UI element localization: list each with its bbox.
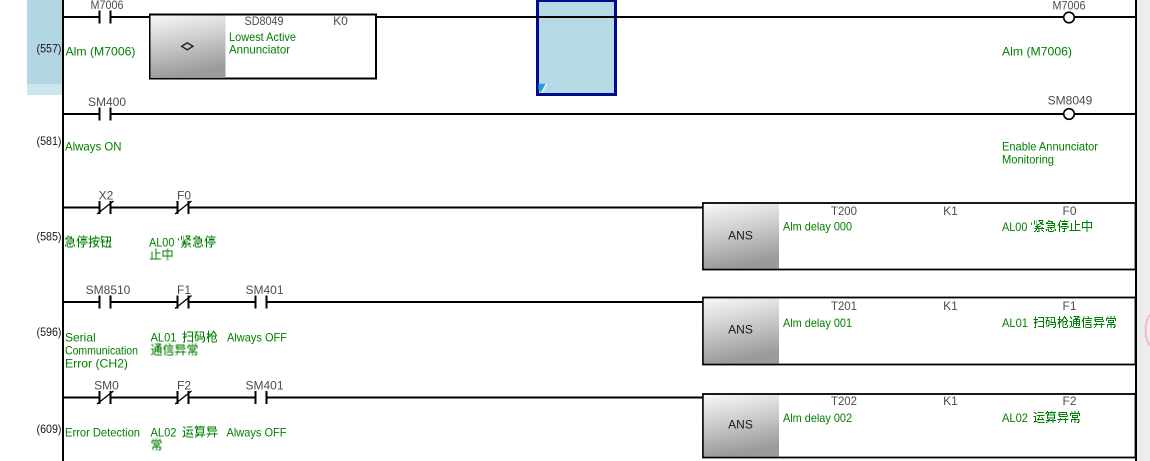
svg-text:T200: T200 (831, 204, 857, 218)
svg-text:ANS: ANS (728, 229, 753, 243)
svg-text:Error Detection: Error Detection (65, 426, 140, 440)
svg-text:AL02: AL02 (1002, 411, 1028, 425)
svg-text:SM401: SM401 (245, 283, 283, 297)
svg-text:(596): (596) (37, 325, 62, 339)
svg-text:Serial: Serial (65, 331, 96, 345)
svg-text:SM8510: SM8510 (86, 283, 131, 297)
svg-text:Always OFF: Always OFF (227, 331, 287, 345)
svg-text:Alm delay 000: Alm delay 000 (783, 220, 852, 234)
svg-text:M7006: M7006 (91, 0, 124, 12)
svg-text:F2: F2 (177, 379, 191, 393)
svg-text:Alm delay 002: Alm delay 002 (783, 411, 852, 425)
svg-text:(557): (557) (37, 42, 62, 56)
svg-text:F0: F0 (1062, 204, 1076, 218)
svg-text:Alm delay 001: Alm delay 001 (783, 316, 852, 330)
svg-text:Annunciator: Annunciator (229, 43, 290, 57)
svg-text:Alm (M7006): Alm (M7006) (66, 45, 136, 59)
svg-text:AL02: AL02 (151, 426, 177, 440)
svg-text:Monitoring: Monitoring (1002, 153, 1054, 167)
svg-text:ANS: ANS (728, 323, 753, 337)
svg-text:AL00 ': AL00 ' (1002, 220, 1033, 234)
svg-text:Always OFF: Always OFF (227, 426, 287, 440)
svg-text:SM401: SM401 (245, 379, 283, 393)
svg-text:K1: K1 (943, 394, 958, 408)
svg-text:T201: T201 (831, 299, 857, 313)
svg-text:(609): (609) (37, 422, 62, 436)
svg-text:Always ON: Always ON (65, 140, 122, 154)
svg-text:SM8049: SM8049 (1048, 94, 1093, 108)
svg-text:F0: F0 (177, 189, 191, 203)
svg-text:SM400: SM400 (88, 95, 126, 109)
svg-text:Communication: Communication (65, 344, 138, 358)
svg-text:F2: F2 (1062, 394, 1076, 408)
svg-text:ANS: ANS (728, 418, 753, 432)
svg-text:Error (CH2): Error (CH2) (65, 357, 128, 371)
svg-text:X2: X2 (99, 189, 114, 203)
svg-text:K1: K1 (943, 299, 958, 313)
svg-text:M7006: M7006 (1053, 0, 1086, 13)
svg-text:AL01: AL01 (1002, 316, 1028, 330)
svg-text:(585): (585) (37, 230, 62, 244)
svg-text:SD8049: SD8049 (245, 14, 284, 28)
svg-text:AL00 ': AL00 ' (149, 236, 180, 250)
svg-text:F1: F1 (177, 283, 191, 297)
svg-text:T202: T202 (831, 394, 857, 408)
svg-text:SM0: SM0 (94, 379, 119, 393)
svg-text:Enable Annunciator: Enable Annunciator (1002, 140, 1098, 154)
svg-text:(581): (581) (37, 134, 62, 148)
svg-text:K1: K1 (943, 204, 958, 218)
svg-text:AL01: AL01 (151, 331, 177, 345)
svg-text:F1: F1 (1062, 299, 1076, 313)
svg-text:K0: K0 (333, 14, 348, 28)
svg-text:Alm (M7006): Alm (M7006) (1002, 45, 1072, 59)
